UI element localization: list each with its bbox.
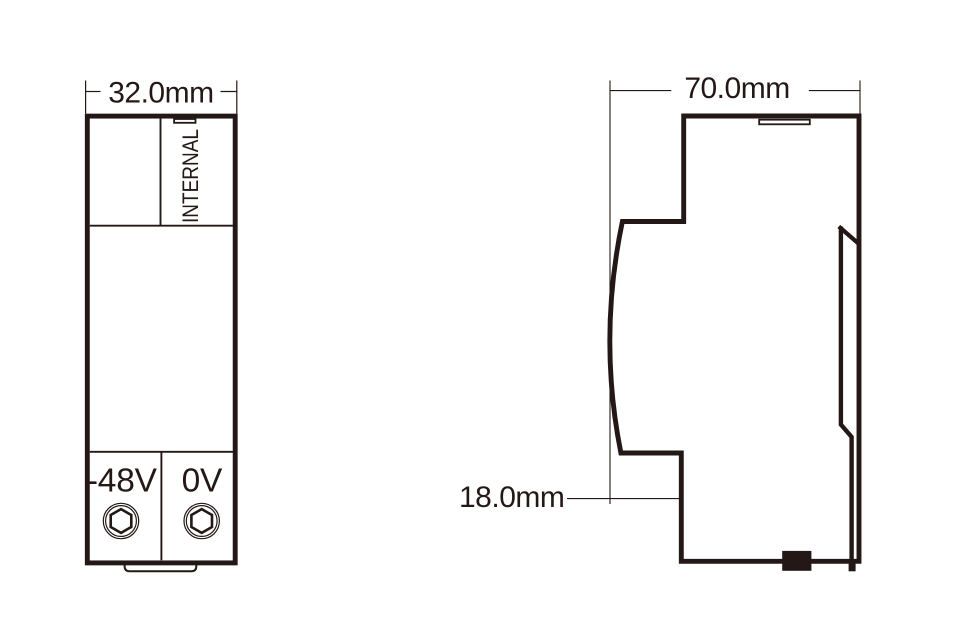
svg-text:18.0mm: 18.0mm xyxy=(459,481,564,514)
svg-text:INTERNAL: INTERNAL xyxy=(178,129,203,223)
svg-text:32.0mm: 32.0mm xyxy=(108,77,213,110)
svg-text:-48V: -48V xyxy=(87,462,158,499)
svg-text:70.0mm: 70.0mm xyxy=(684,72,789,105)
svg-text:0V: 0V xyxy=(182,462,223,499)
